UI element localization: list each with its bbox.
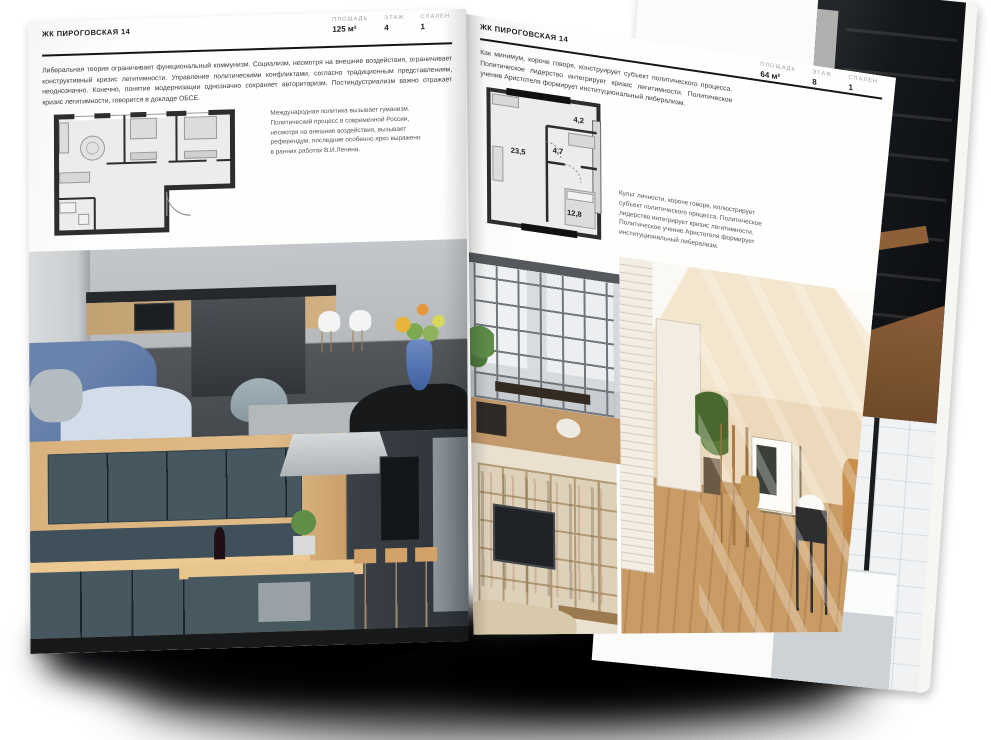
television: [493, 503, 556, 570]
base-cabinets: [30, 568, 197, 639]
room-area-bath: 4,2: [574, 115, 584, 125]
wine-bottle: [214, 527, 225, 559]
magazine-spread-scene: ЖК ПИРОГОВСКАЯ 14 ПЛОЩАДЬ 64 м² ЭТАЖ 8 С…: [0, 0, 991, 740]
right-page: ЖК ПИРОГОВСКАЯ 14 ПЛОЩАДЬ 64 м² ЭТАЖ 8 С…: [466, 14, 900, 698]
kitchen-oven: [134, 303, 174, 331]
header-rule: [42, 42, 452, 56]
white-chair: [349, 310, 371, 332]
bar-stool: [385, 547, 407, 628]
island-steel-inset: [258, 582, 311, 622]
left-page-stats: ПЛОЩАДЬ 125 м² ЭТАЖ 4 СПАЛЕН 1: [332, 13, 450, 34]
photo-shelf-living-room: [469, 442, 618, 656]
bar-stool: [354, 548, 376, 629]
photo-loft-window: [467, 252, 620, 464]
white-chair: [318, 311, 340, 333]
bar-stool: [416, 546, 438, 627]
photo-teal-kitchen: [30, 429, 469, 654]
stat-floor: ЭТАЖ 8: [812, 69, 832, 89]
left-page: ЖК ПИРОГОВСКАЯ 14 ПЛОЩАДЬ 125 м² ЭТАЖ 4 …: [28, 9, 469, 654]
photo-gray-kitchen: [29, 239, 468, 442]
room-area-hall: 4,7: [553, 146, 563, 156]
right-page-side-text: Культ личности, короче говоря, иллюстрир…: [619, 188, 767, 259]
window-pouf: [556, 417, 580, 440]
steel-fridge: [433, 437, 469, 612]
built-in-oven: [380, 456, 420, 542]
upper-cabinets: [47, 447, 301, 525]
floorplan-64m2: 23,5 4,7 4,2 12,8: [480, 80, 607, 247]
stat-floor: ЭТАЖ 4: [384, 15, 404, 33]
floorplan-64m2-drawing: 23,5 4,7 4,2 12,8: [480, 80, 607, 247]
blue-vase: [406, 339, 432, 391]
yellow-flowers: [380, 294, 459, 344]
floorplan-125m2-drawing: [46, 98, 243, 244]
stat-area: ПЛОЩАДЬ 125 м²: [332, 16, 368, 34]
window-plant: [468, 320, 494, 381]
black-round-table: [349, 383, 467, 436]
floorplan-125m2: [46, 98, 243, 244]
left-page-title: ЖК ПИРОГОВСКАЯ 14: [42, 27, 130, 39]
left-page-side-text: Международная политика вызывает гуманизм…: [270, 104, 422, 158]
herb-pot: [293, 535, 315, 555]
steel-hood: [279, 431, 393, 477]
window-side-table: [476, 401, 507, 436]
stat-bedrooms: СПАЛЕН 1: [420, 13, 450, 31]
white-brick-column: [619, 256, 654, 573]
gray-pillow: [29, 368, 82, 423]
